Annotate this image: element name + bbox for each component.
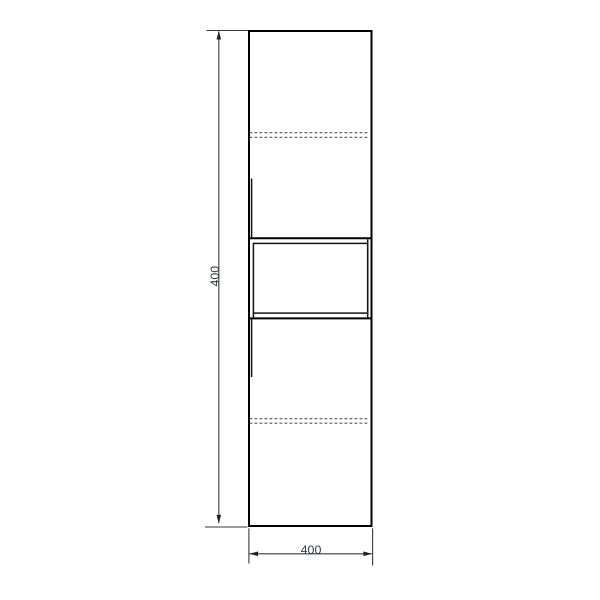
svg-text:400: 400 [301, 543, 322, 557]
svg-text:400: 400 [208, 266, 222, 287]
